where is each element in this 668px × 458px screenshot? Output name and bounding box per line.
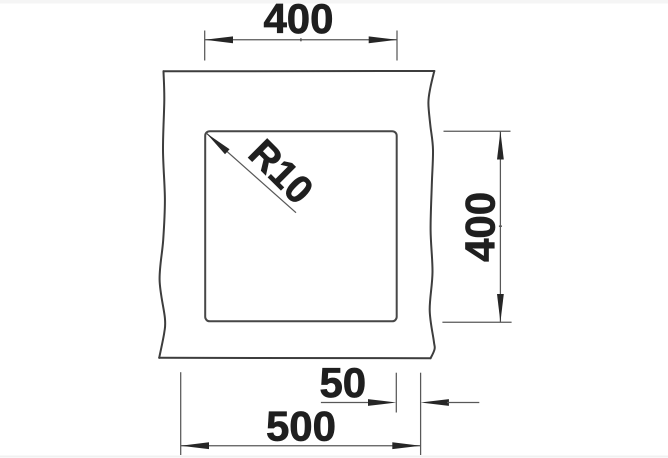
svg-text:500: 500	[266, 403, 336, 450]
svg-text:400: 400	[263, 0, 333, 42]
svg-text:400: 400	[456, 192, 503, 262]
svg-text:50: 50	[319, 359, 366, 406]
